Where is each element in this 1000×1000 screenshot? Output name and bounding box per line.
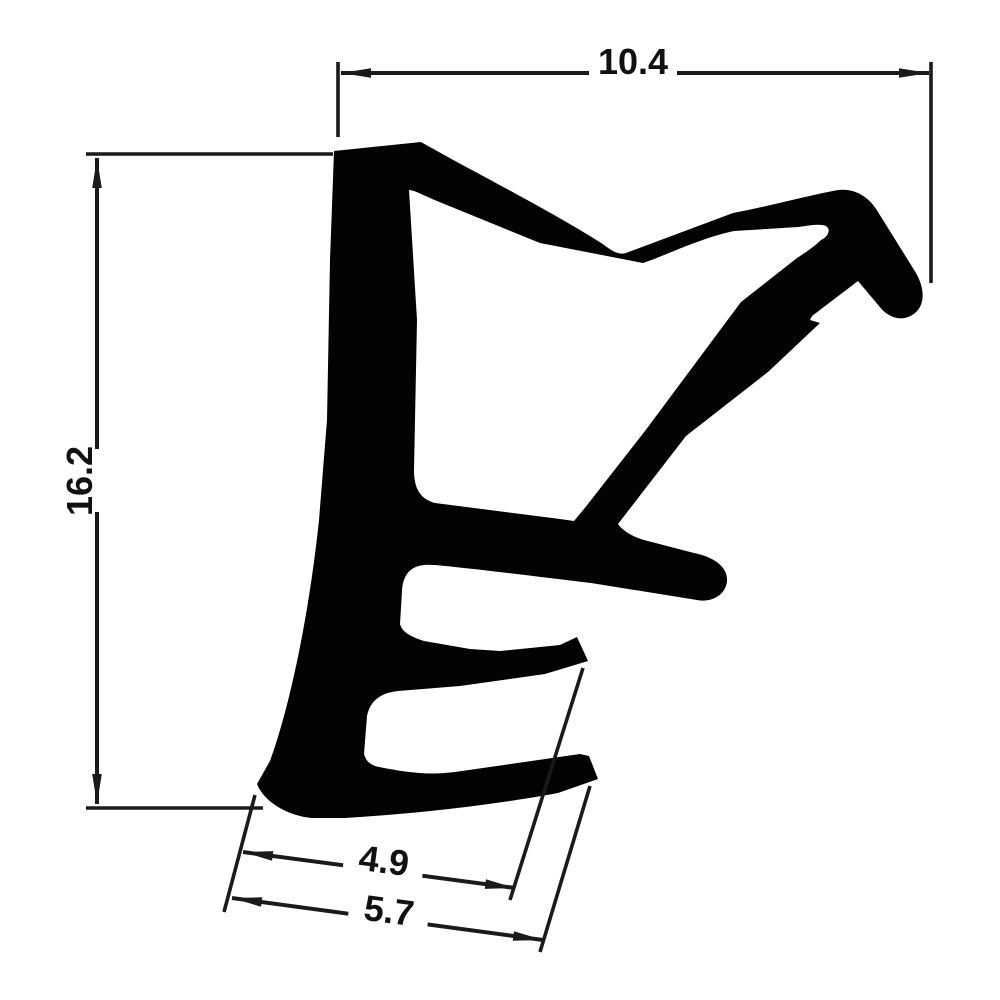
- witness-bottom-right: [540, 786, 590, 952]
- dim-label-left-height: 16.2: [59, 446, 100, 516]
- drawing-page: 10.4 16.2 4.9 5.7: [0, 0, 1000, 1000]
- seal-profile-silhouette: [257, 142, 923, 818]
- dim-label-bottom-inner: 4.9: [357, 837, 412, 884]
- dim-label-bottom-outer: 5.7: [362, 887, 417, 934]
- dim-label-top-width: 10.4: [598, 41, 668, 82]
- technical-drawing-canvas: 10.4 16.2 4.9 5.7: [0, 0, 1000, 1000]
